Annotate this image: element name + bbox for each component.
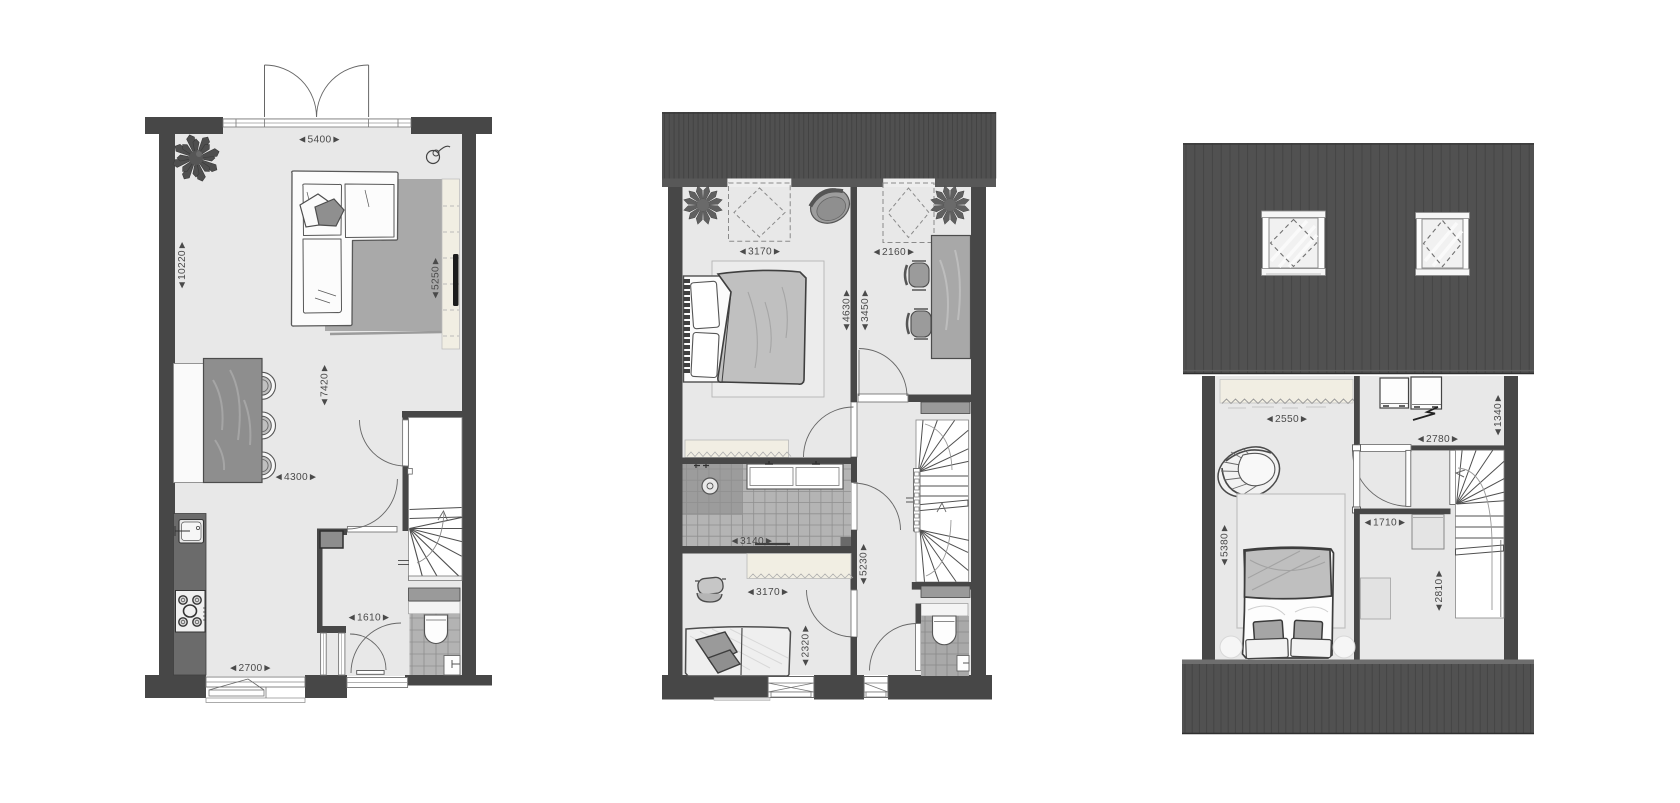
svg-text:◄4300►: ◄4300► (274, 472, 319, 483)
svg-text:◄1610►: ◄1610► (347, 613, 392, 624)
svg-text:◄5400►: ◄5400► (297, 135, 342, 146)
svg-text:◄10220►: ◄10220► (177, 240, 188, 291)
svg-text:◄2320►: ◄2320► (801, 623, 812, 668)
svg-text:◄7420►: ◄7420► (320, 363, 331, 408)
svg-text:◄1710►: ◄1710► (1363, 518, 1408, 529)
svg-text:◄2700►: ◄2700► (228, 663, 273, 674)
svg-text:◄3170►: ◄3170► (746, 587, 791, 598)
svg-text:◄5230►: ◄5230► (859, 542, 870, 587)
svg-text:◄5380►: ◄5380► (1220, 523, 1231, 568)
svg-text:◄2810►: ◄2810► (1434, 568, 1445, 613)
svg-text:◄5250►: ◄5250► (431, 256, 442, 301)
svg-text:◄2550►: ◄2550► (1265, 414, 1310, 425)
svg-text:◄3450►: ◄3450► (860, 288, 871, 333)
svg-text:◄2780►: ◄2780► (1416, 434, 1461, 445)
svg-text:◄2160►: ◄2160► (872, 247, 917, 258)
svg-text:◄3170►: ◄3170► (738, 247, 783, 258)
svg-text:◄4630►: ◄4630► (842, 288, 853, 333)
svg-text:◄3140►: ◄3140► (730, 536, 775, 547)
svg-text:◄1340►: ◄1340► (1493, 393, 1504, 438)
